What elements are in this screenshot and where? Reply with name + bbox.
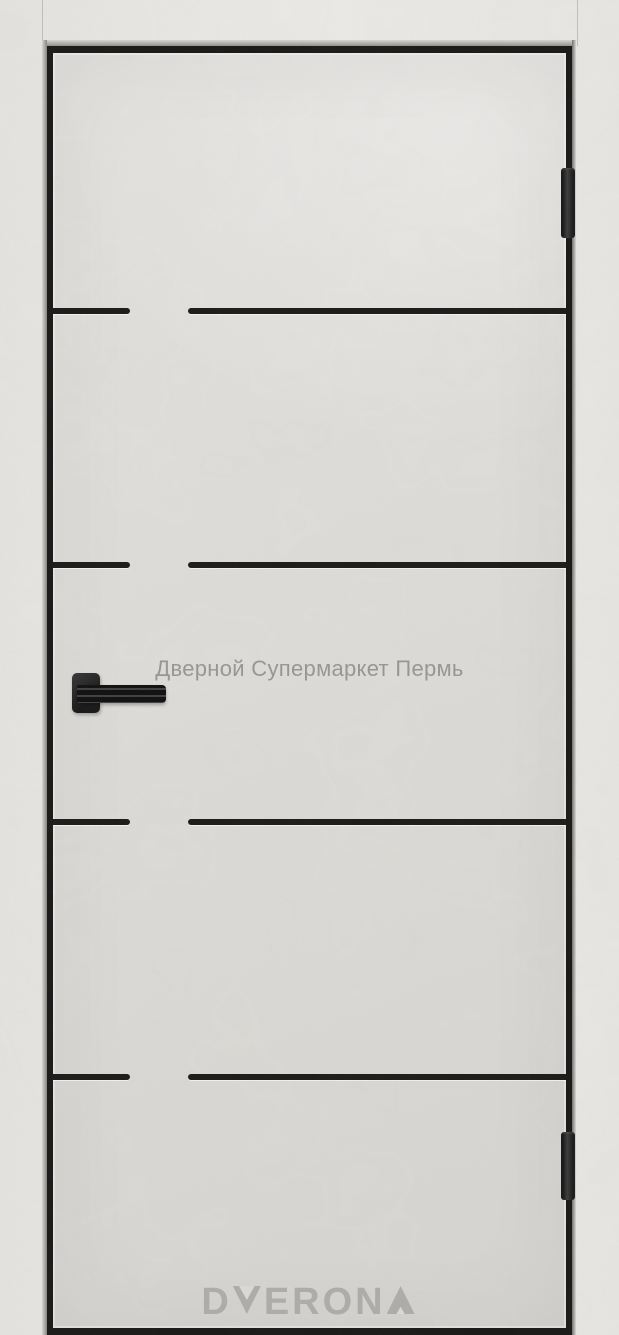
groove-line bbox=[53, 562, 130, 568]
groove-line bbox=[188, 308, 566, 314]
logo-triangle-v-icon bbox=[233, 1286, 261, 1314]
groove-line bbox=[53, 1074, 130, 1080]
groove-line bbox=[188, 562, 566, 568]
groove-line bbox=[53, 819, 130, 825]
groove-line bbox=[188, 1074, 566, 1080]
logo-letters-eron: ERON bbox=[264, 1281, 386, 1323]
logo-triangle-a-icon bbox=[387, 1286, 415, 1314]
groove-line bbox=[53, 308, 130, 314]
casing-seam-right bbox=[577, 0, 578, 46]
groove-line bbox=[188, 819, 566, 825]
hinge-bottom bbox=[561, 1132, 575, 1200]
door-handle-lever bbox=[77, 685, 166, 703]
watermark-text: Дверной Супермаркет Пермь bbox=[53, 656, 566, 682]
logo-letter-d: D bbox=[201, 1281, 231, 1323]
brand-logo: DERON bbox=[53, 1283, 566, 1321]
door-product-photo: Дверной Супермаркет Пермь DERON bbox=[0, 0, 619, 1335]
hinge-top bbox=[561, 168, 575, 238]
door-leaf: Дверной Супермаркет Пермь DERON bbox=[53, 53, 566, 1328]
